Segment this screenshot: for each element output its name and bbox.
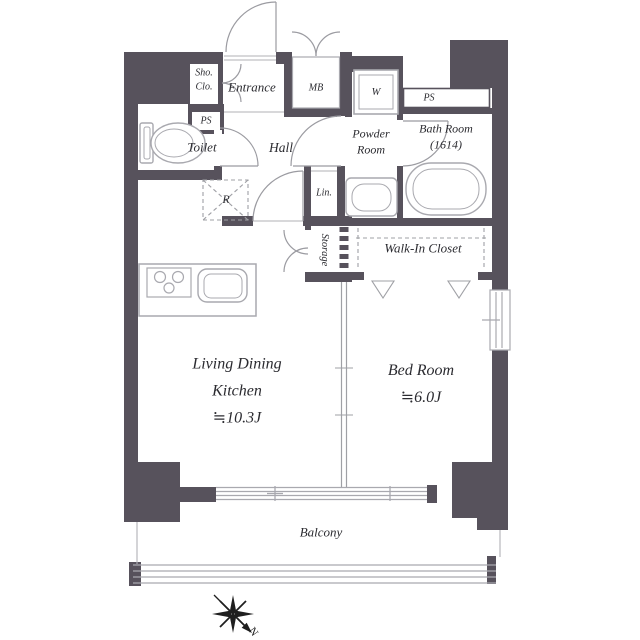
entrance-door-arc: [226, 2, 276, 52]
sliding-partition: [335, 227, 353, 487]
meter-box-door-arcs: [292, 32, 340, 56]
closet-hanger-pipes: [356, 228, 486, 268]
door-swings: [220, 2, 448, 272]
toilet-door-arc: [220, 128, 258, 166]
bath-door-arc: [403, 121, 448, 166]
pipe-space-right-box: [404, 89, 490, 108]
pipe-space-left-box: [192, 112, 220, 130]
kitchen-sink: [198, 269, 247, 302]
bedroom-window: [482, 290, 510, 350]
powder-room-door-arc: [291, 116, 341, 166]
washbasin: [346, 178, 397, 216]
washing-machine-pan: [354, 70, 398, 114]
balcony-railing: [133, 565, 496, 583]
storage-door-arcs: [284, 230, 308, 272]
toilet-fixture: [140, 123, 205, 163]
floor-plan-drawing: [0, 0, 640, 640]
balcony-sliding-window: [216, 486, 427, 501]
closet-folding-door-marks: [372, 281, 470, 298]
bathtub: [406, 163, 486, 215]
hall-ldk-door-arc: [253, 171, 303, 221]
compass-icon: [212, 595, 254, 633]
floor-plan: Sho. Clo. Entrance MB W PS PS Toilet Hal…: [0, 0, 640, 640]
shoe-closet-door-arcs: [222, 64, 241, 102]
refrigerator-space: [203, 180, 248, 220]
stove: [147, 268, 191, 297]
